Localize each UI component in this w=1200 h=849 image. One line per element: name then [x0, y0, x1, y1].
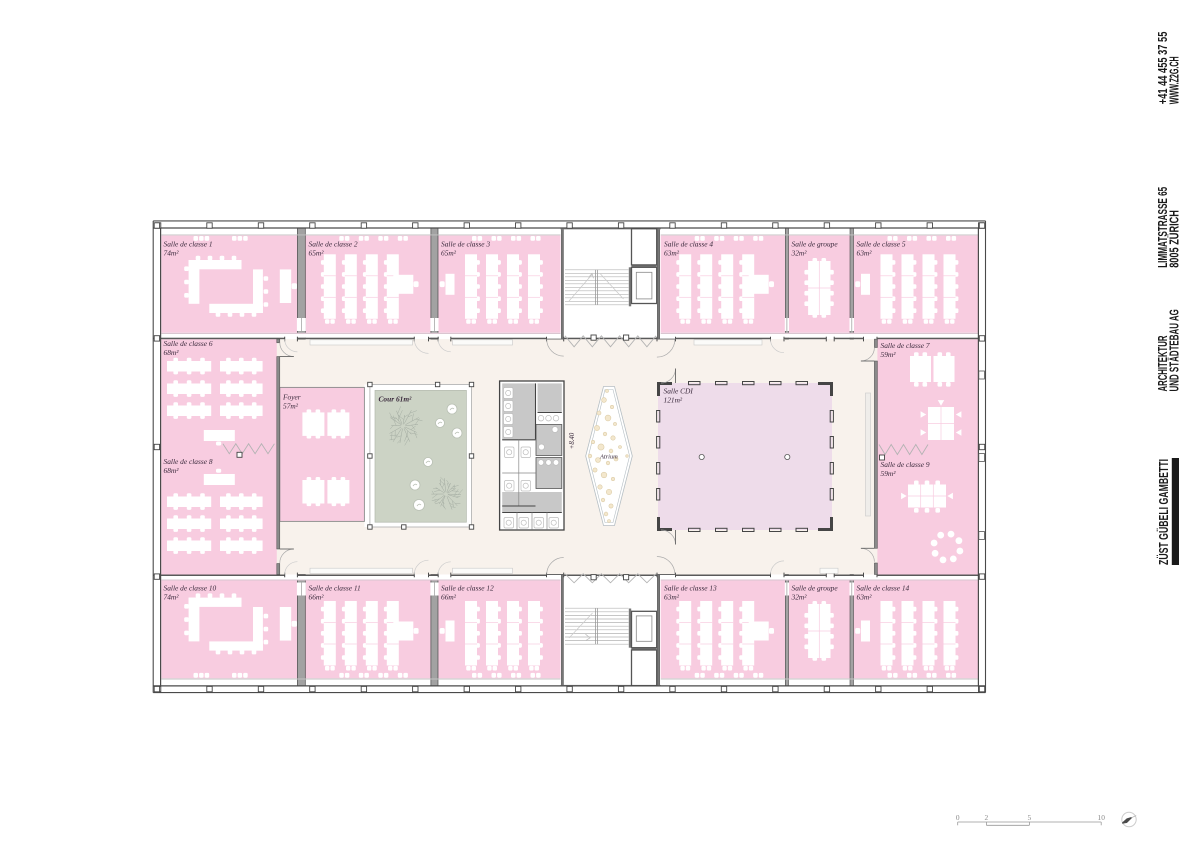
svg-text:32m²: 32m²: [791, 593, 808, 602]
svg-text:Foyer: Foyer: [282, 393, 301, 402]
svg-text:Salle de classe 10: Salle de classe 10: [164, 584, 217, 593]
svg-text:121m²: 121m²: [664, 396, 683, 405]
svg-text:10: 10: [1098, 813, 1106, 822]
svg-text:Salle de classe 11: Salle de classe 11: [309, 584, 361, 593]
svg-text:Salle de groupe: Salle de groupe: [792, 240, 839, 249]
svg-text:Salle de classe 12: Salle de classe 12: [441, 584, 494, 593]
svg-text:66m²: 66m²: [441, 593, 457, 602]
svg-text:74m²: 74m²: [164, 593, 180, 602]
svg-text:Salle CDI: Salle CDI: [664, 386, 694, 395]
svg-text:Salle de classe 6: Salle de classe 6: [164, 339, 213, 348]
svg-text:Salle de classe 7: Salle de classe 7: [881, 341, 930, 350]
svg-text:66m²: 66m²: [309, 593, 325, 602]
svg-text:Salle de classe 9: Salle de classe 9: [881, 460, 930, 469]
svg-text:63m²: 63m²: [857, 593, 873, 602]
svg-text:Salle de classe 13: Salle de classe 13: [664, 584, 717, 593]
svg-text:63m²: 63m²: [857, 249, 873, 258]
svg-text:68m²: 68m²: [164, 466, 180, 475]
svg-text:UND STÄDTEBAU AG: UND STÄDTEBAU AG: [1167, 309, 1182, 391]
svg-text:Salle de classe 2: Salle de classe 2: [309, 240, 358, 249]
svg-text:57m²: 57m²: [283, 402, 299, 411]
svg-text:Cour 61m²: Cour 61m²: [379, 395, 413, 404]
svg-text:8005 ZÜRICH: 8005 ZÜRICH: [1167, 210, 1182, 268]
svg-text:63m²: 63m²: [664, 249, 680, 258]
svg-text:Salle de classe 14: Salle de classe 14: [857, 584, 910, 593]
svg-text:32m²: 32m²: [791, 249, 808, 258]
svg-text:Salle de classe 3: Salle de classe 3: [441, 240, 490, 249]
svg-text:2: 2: [985, 813, 989, 822]
svg-text:WWW.Z2G.CH: WWW.Z2G.CH: [1168, 56, 1182, 104]
svg-text:74m²: 74m²: [164, 249, 180, 258]
svg-text:Salle de classe 8: Salle de classe 8: [164, 457, 213, 466]
svg-text:5: 5: [1028, 813, 1032, 822]
svg-text:Salle de classe 1: Salle de classe 1: [164, 240, 213, 249]
svg-text:Atrium: Atrium: [599, 454, 618, 461]
svg-text:Salle de classe 5: Salle de classe 5: [857, 240, 906, 249]
svg-text:59m²: 59m²: [881, 350, 897, 359]
svg-text:ZÜST GÜBELI GAMBETTI: ZÜST GÜBELI GAMBETTI: [1156, 459, 1171, 565]
svg-text:65m²: 65m²: [309, 249, 325, 258]
svg-text:+8.40: +8.40: [569, 432, 576, 449]
svg-text:0: 0: [956, 813, 960, 822]
svg-text:Salle de groupe: Salle de groupe: [792, 584, 839, 593]
svg-text:63m²: 63m²: [664, 593, 680, 602]
svg-text:68m²: 68m²: [164, 348, 180, 357]
svg-text:Salle de classe 4: Salle de classe 4: [664, 240, 713, 249]
svg-text:59m²: 59m²: [881, 469, 897, 478]
svg-text:65m²: 65m²: [441, 249, 457, 258]
